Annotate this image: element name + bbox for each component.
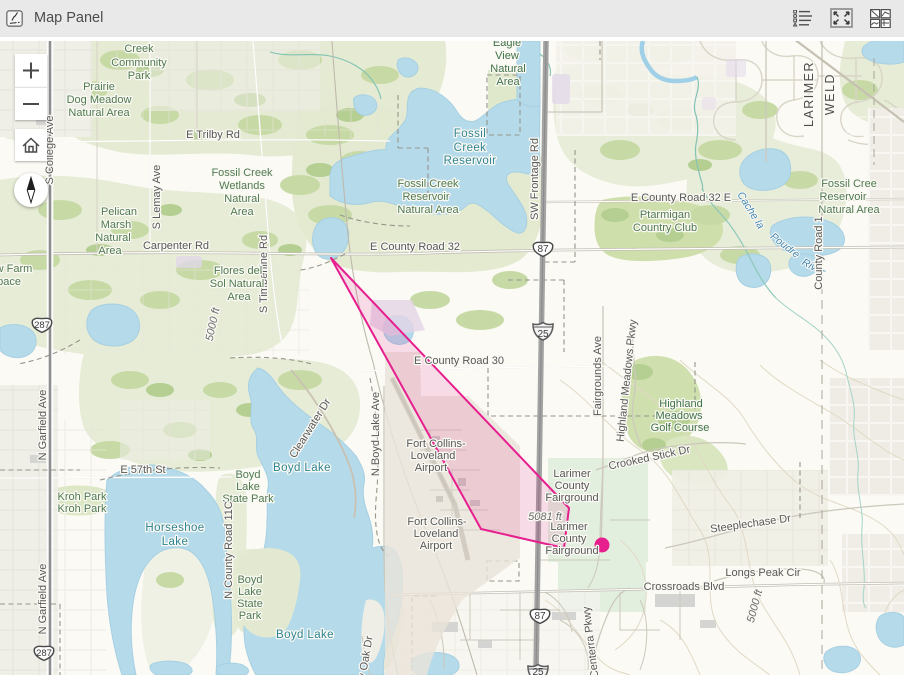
svg-text:SW Frontage Rd: SW Frontage Rd bbox=[529, 138, 541, 220]
svg-text:Kroh Park: Kroh Park bbox=[58, 491, 107, 503]
svg-text:Natural Area: Natural Area bbox=[818, 204, 880, 216]
svg-text:Dog Meadow: Dog Meadow bbox=[67, 94, 132, 106]
svg-text:Horseshoe: Horseshoe bbox=[145, 522, 204, 534]
svg-text:Fort Collins-: Fort Collins- bbox=[407, 516, 467, 528]
svg-text:Kroh Park: Kroh Park bbox=[58, 503, 107, 515]
svg-text:Boyd: Boyd bbox=[237, 574, 262, 586]
svg-text:View: View bbox=[495, 50, 519, 62]
svg-text:Golf Course: Golf Course bbox=[651, 422, 710, 434]
svg-text:Natural: Natural bbox=[224, 193, 259, 205]
svg-text:E County Road 32: E County Road 32 bbox=[370, 241, 460, 253]
svg-text:87: 87 bbox=[534, 611, 546, 622]
svg-text:LARIMER: LARIMER bbox=[802, 61, 816, 127]
svg-text:Natural: Natural bbox=[490, 63, 525, 75]
svg-text:S Lemay Ave: S Lemay Ave bbox=[151, 165, 163, 230]
svg-text:Larimer: Larimer bbox=[550, 521, 588, 533]
svg-text:E 57th St: E 57th St bbox=[120, 464, 165, 476]
svg-text:Area: Area bbox=[98, 245, 122, 257]
svg-text:Natural Area: Natural Area bbox=[68, 107, 130, 119]
svg-text:Area: Area bbox=[230, 206, 254, 218]
svg-text:County: County bbox=[552, 533, 587, 545]
svg-text:E Trilby Rd: E Trilby Rd bbox=[186, 129, 240, 141]
svg-text:Park: Park bbox=[128, 70, 151, 82]
svg-text:Wetlands: Wetlands bbox=[219, 180, 265, 192]
svg-text:Boyd: Boyd bbox=[235, 469, 260, 481]
svg-text:N County Road 11C: N County Road 11C bbox=[223, 501, 235, 599]
svg-text:N Garfield Ave: N Garfield Ave bbox=[37, 564, 49, 635]
svg-text:Country Club: Country Club bbox=[633, 222, 697, 234]
svg-text:Fairground: Fairground bbox=[545, 545, 598, 557]
svg-text:Boyd Lake: Boyd Lake bbox=[276, 629, 334, 641]
svg-text:Community: Community bbox=[111, 57, 167, 69]
svg-text:WELD: WELD bbox=[823, 73, 837, 115]
svg-text:Flores del: Flores del bbox=[214, 265, 262, 277]
svg-text:Highland: Highland bbox=[659, 398, 702, 410]
svg-text:Fairgrounds Ave: Fairgrounds Ave bbox=[592, 336, 604, 416]
svg-text:Crossroads Blvd: Crossroads Blvd bbox=[644, 581, 725, 593]
svg-text:Reservoir: Reservoir bbox=[444, 155, 497, 167]
svg-text:Park: Park bbox=[239, 610, 262, 622]
svg-text:Prairie: Prairie bbox=[83, 81, 115, 93]
svg-text:E County Road 32 E: E County Road 32 E bbox=[631, 192, 731, 204]
svg-text:Reservoir: Reservoir bbox=[402, 191, 449, 203]
svg-text:Carpenter Rd: Carpenter Rd bbox=[143, 240, 209, 252]
svg-text:Fossil Creek: Fossil Creek bbox=[211, 167, 273, 179]
svg-text:pace: pace bbox=[0, 276, 21, 288]
svg-text:N Boyd Lake Ave: N Boyd Lake Ave bbox=[370, 392, 382, 476]
svg-text:County Road 1: County Road 1 bbox=[813, 216, 825, 289]
svg-text:Boyd Lake: Boyd Lake bbox=[273, 462, 331, 474]
svg-text:Fairground: Fairground bbox=[545, 492, 598, 504]
svg-text:Fossil: Fossil bbox=[454, 128, 486, 140]
svg-text:Meadows: Meadows bbox=[655, 410, 703, 422]
svg-text:Airport: Airport bbox=[415, 462, 447, 474]
svg-text:County: County bbox=[555, 480, 590, 492]
svg-text:287: 287 bbox=[36, 648, 52, 659]
svg-text:Fossil Creek: Fossil Creek bbox=[397, 178, 459, 190]
svg-text:Fort Collins-: Fort Collins- bbox=[406, 438, 466, 450]
svg-text:Longs Peak Cir: Longs Peak Cir bbox=[725, 567, 801, 579]
svg-text:Pelican: Pelican bbox=[101, 206, 137, 218]
svg-text:87: 87 bbox=[537, 244, 549, 255]
svg-text:Fossil Cree: Fossil Cree bbox=[821, 178, 877, 190]
svg-text:Lake: Lake bbox=[162, 536, 189, 548]
svg-text:287: 287 bbox=[34, 320, 50, 331]
svg-text:Marsh: Marsh bbox=[101, 219, 132, 231]
svg-text:Natural Area: Natural Area bbox=[397, 204, 459, 216]
svg-text:Natural: Natural bbox=[95, 232, 130, 244]
svg-text:N Garfield Ave: N Garfield Ave bbox=[37, 390, 49, 461]
svg-text:Creek: Creek bbox=[124, 43, 154, 55]
svg-text:State: State bbox=[237, 598, 263, 610]
svg-text:Lake: Lake bbox=[238, 586, 262, 598]
svg-text:Area: Area bbox=[227, 291, 251, 303]
svg-text:25: 25 bbox=[532, 667, 544, 675]
svg-text:Loveland: Loveland bbox=[414, 528, 459, 540]
svg-text:Area: Area bbox=[496, 76, 520, 88]
svg-text:E County Road 30: E County Road 30 bbox=[414, 355, 504, 367]
svg-text:Eagle: Eagle bbox=[493, 41, 521, 49]
svg-text:Airport: Airport bbox=[420, 540, 452, 552]
svg-text:Larimer: Larimer bbox=[553, 468, 591, 480]
svg-text:Creek: Creek bbox=[454, 142, 487, 154]
svg-text:Sol Natural: Sol Natural bbox=[210, 278, 264, 290]
svg-text:Ptarmigan: Ptarmigan bbox=[640, 209, 690, 221]
svg-text:25: 25 bbox=[537, 329, 549, 340]
svg-text:Reservoir: Reservoir bbox=[819, 191, 866, 203]
svg-text:w Farm: w Farm bbox=[0, 263, 32, 275]
svg-text:Loveland: Loveland bbox=[411, 450, 456, 462]
svg-text:Lake: Lake bbox=[236, 481, 260, 493]
